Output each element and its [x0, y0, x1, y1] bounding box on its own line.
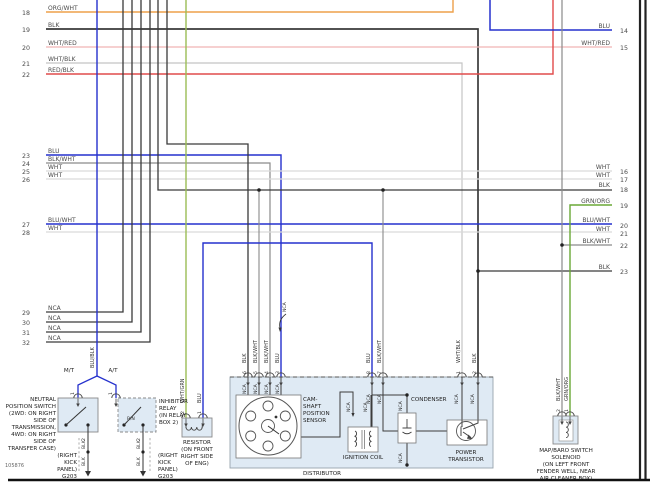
- wire-label: ORG/WHT: [48, 5, 78, 12]
- map-baro-label: MAP/BARO SWITCH: [539, 448, 593, 454]
- resistor-label: RESISTOR: [183, 440, 211, 446]
- wire-label: WHT: [48, 225, 62, 232]
- wire-number: 25: [22, 169, 30, 176]
- pin-number: 2: [180, 411, 186, 414]
- distributor-pin-numbers: 6 5 4 3 8 7 1 2: [242, 371, 478, 374]
- right-wire-labels: BLU 14 WHT/RED 15 WHT 16 WHT 17 BLK 18 G…: [581, 23, 628, 276]
- map-baro-label: AIR CLEANER BOX): [540, 476, 593, 482]
- wire-tag: BLK: [136, 456, 142, 466]
- wire-number: 19: [22, 27, 30, 34]
- wire-tag: WHT/BLK: [456, 339, 462, 363]
- wiring-diagram-page: 18 ORG/WHT 19 BLK 20 WHT/RED 21 WHT/BLK …: [0, 0, 650, 488]
- wire-label: NCA: [48, 325, 62, 332]
- component-label: (2WD: ON RIGHT: [9, 411, 57, 417]
- mt-label: M/T: [64, 368, 75, 374]
- wire-tag: BLK/WHT: [264, 339, 270, 363]
- wire-label: WHT/RED: [581, 40, 610, 47]
- wire-number: 21: [620, 231, 628, 238]
- pin-number: 2: [556, 409, 562, 412]
- pin-number: 2: [81, 438, 87, 441]
- component-label: SIDE OF: [34, 418, 56, 424]
- nca-tag: NCA: [253, 383, 259, 394]
- wire-number: 23: [22, 153, 30, 160]
- wire-blk-dist-pin6: [167, 0, 248, 377]
- wire-label: WHT: [48, 172, 62, 179]
- wire-tag: BLK/WHT: [556, 377, 562, 401]
- ignition-coil: IGNITION COIL: [343, 427, 384, 461]
- wire-tag: BLU: [275, 353, 281, 363]
- power-transistor: POWER TRANSISTOR: [447, 420, 487, 463]
- wire-tag: BLK: [472, 353, 478, 363]
- wire-number: 23: [620, 269, 628, 276]
- wires: [46, 0, 612, 418]
- wire-number: 31: [22, 330, 30, 337]
- wire-label: BLK/WHT: [582, 238, 610, 245]
- junction-dot: [381, 188, 385, 192]
- nca-tag: NCA: [282, 301, 288, 312]
- wire-number: 20: [22, 45, 30, 52]
- wire-number: 18: [620, 187, 628, 194]
- transistor-circle: [457, 422, 476, 441]
- wire-number: 16: [620, 169, 628, 176]
- wire-label: BLU: [598, 23, 610, 30]
- ground-label: G203: [158, 474, 173, 480]
- wire-label: WHT/BLK: [48, 56, 77, 63]
- wire-number: 26: [22, 177, 30, 184]
- nca-tag: NCA: [242, 383, 248, 394]
- switch-relay-area: M/T A/T 1 1 2 NEUTRAL POSITION SWITCH (2…: [6, 368, 188, 480]
- wire-number: 29: [22, 310, 30, 317]
- component-label: 4WD: ON RIGHT: [11, 432, 57, 438]
- nca-annotation: NCA: [279, 301, 289, 332]
- ground-symbol: [85, 468, 91, 477]
- wire-number: 22: [620, 243, 628, 250]
- component-label: RELAY: [159, 406, 177, 412]
- wire-label: WHT: [596, 172, 610, 179]
- nca-tag: NCA: [377, 393, 383, 404]
- wire-number: 17: [620, 177, 628, 184]
- resistor-label: (ON FRONT: [181, 447, 213, 453]
- wire-number: 24: [22, 161, 30, 168]
- nca-tag: NCA: [398, 452, 404, 463]
- map-baro-solenoid: 2 1 MAP/BARO SWITCH SOLENOID (ON LEFT FR…: [537, 409, 596, 482]
- component-label: INHIBITOR: [159, 399, 188, 405]
- resistor-label: RIGHT SIDE: [181, 454, 214, 460]
- component-label: POSITION SWITCH: [6, 404, 56, 410]
- wire-number: 15: [620, 45, 628, 52]
- nca-tag: NCA: [398, 400, 404, 411]
- wire-tag: BLK: [81, 456, 87, 466]
- nca-tag: NCA: [275, 383, 281, 394]
- wire-label: BLU: [48, 148, 60, 155]
- nca-tag: NCA: [363, 401, 369, 412]
- junction-dot: [141, 450, 144, 453]
- wire-wht-blk-21: [46, 63, 462, 377]
- wire-number: 27: [22, 222, 30, 229]
- document-number: 105876: [5, 463, 24, 469]
- wire-number: 28: [22, 230, 30, 237]
- component-label: SIDE OF: [34, 439, 56, 445]
- wire-label: BLK/WHT: [48, 156, 76, 163]
- wiring-diagram: 18 ORG/WHT 19 BLK 20 WHT/RED 21 WHT/BLK …: [0, 0, 650, 488]
- ignition-coil-label: IGNITION COIL: [343, 455, 384, 461]
- ground-symbol: [140, 468, 146, 477]
- wire-org-wht-18: [46, 0, 453, 12]
- sensor-label: CAM-: [303, 397, 318, 403]
- wire-label: NCA: [48, 305, 62, 312]
- wire-grn-org-19: [570, 205, 612, 416]
- wire-label: BLK: [599, 182, 611, 189]
- wire-label: WHT: [48, 164, 62, 171]
- wire-label: BLU/WHT: [48, 217, 76, 224]
- map-baro-label: SOLENOID: [551, 455, 580, 461]
- wire-tag: BLU: [197, 393, 203, 403]
- component-label: TRANSMISSION,: [11, 425, 56, 431]
- nca-tag: NCA: [346, 401, 352, 412]
- map-baro-label: (ON LEFT FRONT: [543, 462, 590, 468]
- junction-dot: [86, 450, 89, 453]
- wire-label: WHT: [596, 226, 610, 233]
- wire-blk-19: [46, 29, 478, 377]
- ground-label: G203: [62, 474, 77, 480]
- nca-tag: NCA: [454, 393, 460, 404]
- junction-dot: [476, 269, 480, 273]
- location-label: KICK: [64, 460, 77, 466]
- wire-label: NCA: [48, 335, 62, 342]
- resistor-label: OF ENG): [185, 461, 209, 467]
- wire-blu-23: [46, 155, 281, 377]
- wire-tag: BLU: [366, 353, 372, 363]
- component-label: TRANSFER CASE): [7, 446, 56, 452]
- rotor-dot: [275, 416, 278, 419]
- component-label: NEUTRAL: [30, 397, 57, 403]
- wire-number: 20: [620, 223, 628, 230]
- wire-number: 19: [620, 203, 628, 210]
- map-baro-label: FENDER WELL, NEAR: [537, 469, 596, 475]
- sensor-label: SENSOR: [303, 418, 326, 424]
- location-label: PANEL): [158, 467, 178, 473]
- pn-label: P/N: [127, 416, 135, 422]
- junction-dot: [405, 463, 408, 466]
- pin-number: 1: [197, 411, 203, 414]
- sensor-label: POSITION: [303, 411, 330, 417]
- pin-number: 2: [136, 438, 142, 441]
- wire-label: BLK: [48, 22, 60, 29]
- pin-number: 1: [564, 409, 570, 412]
- ignition-coil-box: [348, 427, 378, 452]
- wire-number: 21: [22, 61, 30, 68]
- location-label: (RIGHT: [158, 453, 178, 459]
- wire-tag: BLK: [242, 353, 248, 363]
- resistor: 2 1 RESISTOR (ON FRONT RIGHT SIDE OF ENG…: [180, 411, 214, 467]
- wire-number: 22: [22, 72, 30, 79]
- nca-tag: NCA: [264, 383, 270, 394]
- wire-label: GRN/ORG: [581, 198, 610, 205]
- location-label: (RIGHT: [57, 453, 77, 459]
- wire-blu-14: [490, 0, 612, 30]
- distributor-label: DISTRIBUTOR: [303, 471, 341, 477]
- wire-label: WHT: [596, 164, 610, 171]
- component-label: BOX 2): [159, 420, 178, 426]
- wire-tag: BLU/BLK: [90, 346, 96, 368]
- wire-number: 30: [22, 320, 30, 327]
- wire-tag: GRN/ORG: [564, 377, 570, 401]
- power-transistor-label: TRANSISTOR: [447, 457, 484, 463]
- wire-number: 18: [22, 10, 30, 17]
- wire-label: BLK: [599, 264, 611, 271]
- wire-tag: BLK/WHT: [377, 339, 383, 363]
- wire-label: BLU/WHT: [582, 217, 610, 224]
- wire-blk-wht-24: [46, 163, 270, 377]
- wire-label: RED/BLK: [48, 67, 75, 74]
- wire-tag: BLK/WHT: [253, 339, 259, 363]
- wire-number: 32: [22, 340, 30, 347]
- condenser-label: CONDENSER: [411, 397, 447, 403]
- nca-tag: NCA: [470, 393, 476, 404]
- at-label: A/T: [108, 368, 118, 374]
- wire-label: NCA: [48, 315, 62, 322]
- left-wire-labels: 18 ORG/WHT 19 BLK 20 WHT/RED 21 WHT/BLK …: [22, 5, 78, 347]
- wire-number: 14: [620, 28, 628, 35]
- power-transistor-label: POWER: [456, 450, 477, 456]
- junction-dot: [560, 243, 564, 247]
- junction-dot: [257, 188, 261, 192]
- junction-dot: [405, 393, 408, 396]
- location-label: PANEL): [57, 467, 77, 473]
- sensor-label: SHAFT: [303, 404, 322, 410]
- location-label: KICK: [158, 460, 171, 466]
- wire-label: WHT/RED: [48, 40, 77, 47]
- relay-box: [118, 398, 156, 432]
- inhibitor-relay: P/N 2 INHIBITOR RELAY (IN RELAY BOX 2) (…: [112, 394, 188, 480]
